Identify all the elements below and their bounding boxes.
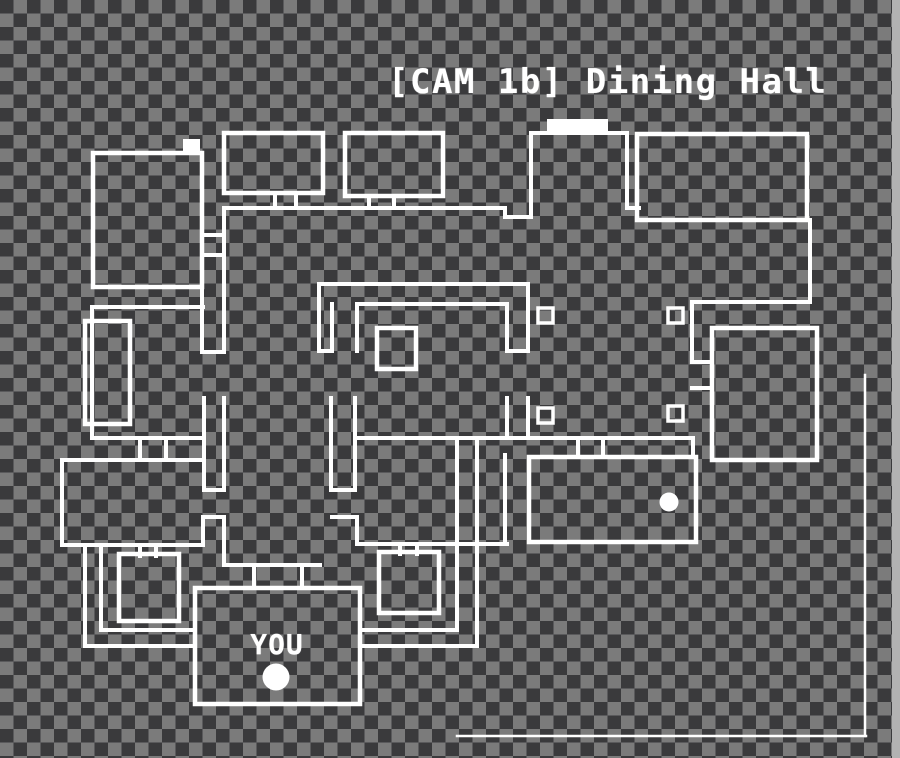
- corner-door-highlight: [183, 139, 200, 153]
- room-lower-left: [119, 554, 179, 621]
- wall-block: [538, 308, 553, 323]
- you-label: YOU: [250, 628, 304, 661]
- screen-right-edge-band: [892, 0, 900, 758]
- wall-block: [668, 308, 683, 323]
- table-square: [377, 328, 416, 369]
- room-top-left: [93, 153, 202, 287]
- room-right: [712, 328, 817, 460]
- room-top-a: [224, 133, 323, 193]
- room-top-right: [637, 134, 807, 220]
- camera-monitor-screen: [CAM 1b] Dining Hall YOU: [0, 0, 900, 758]
- camera-map-svg[interactable]: [0, 0, 900, 758]
- wall-block: [538, 408, 553, 423]
- room-lower-middle: [379, 552, 439, 613]
- wall-block: [668, 406, 683, 421]
- camera-title-label: [CAM 1b] Dining Hall: [388, 62, 827, 102]
- stage-door-highlight: [547, 119, 608, 133]
- subject-dot: [660, 493, 679, 512]
- room-top-b: [345, 133, 443, 196]
- you-position-dot: [263, 664, 290, 691]
